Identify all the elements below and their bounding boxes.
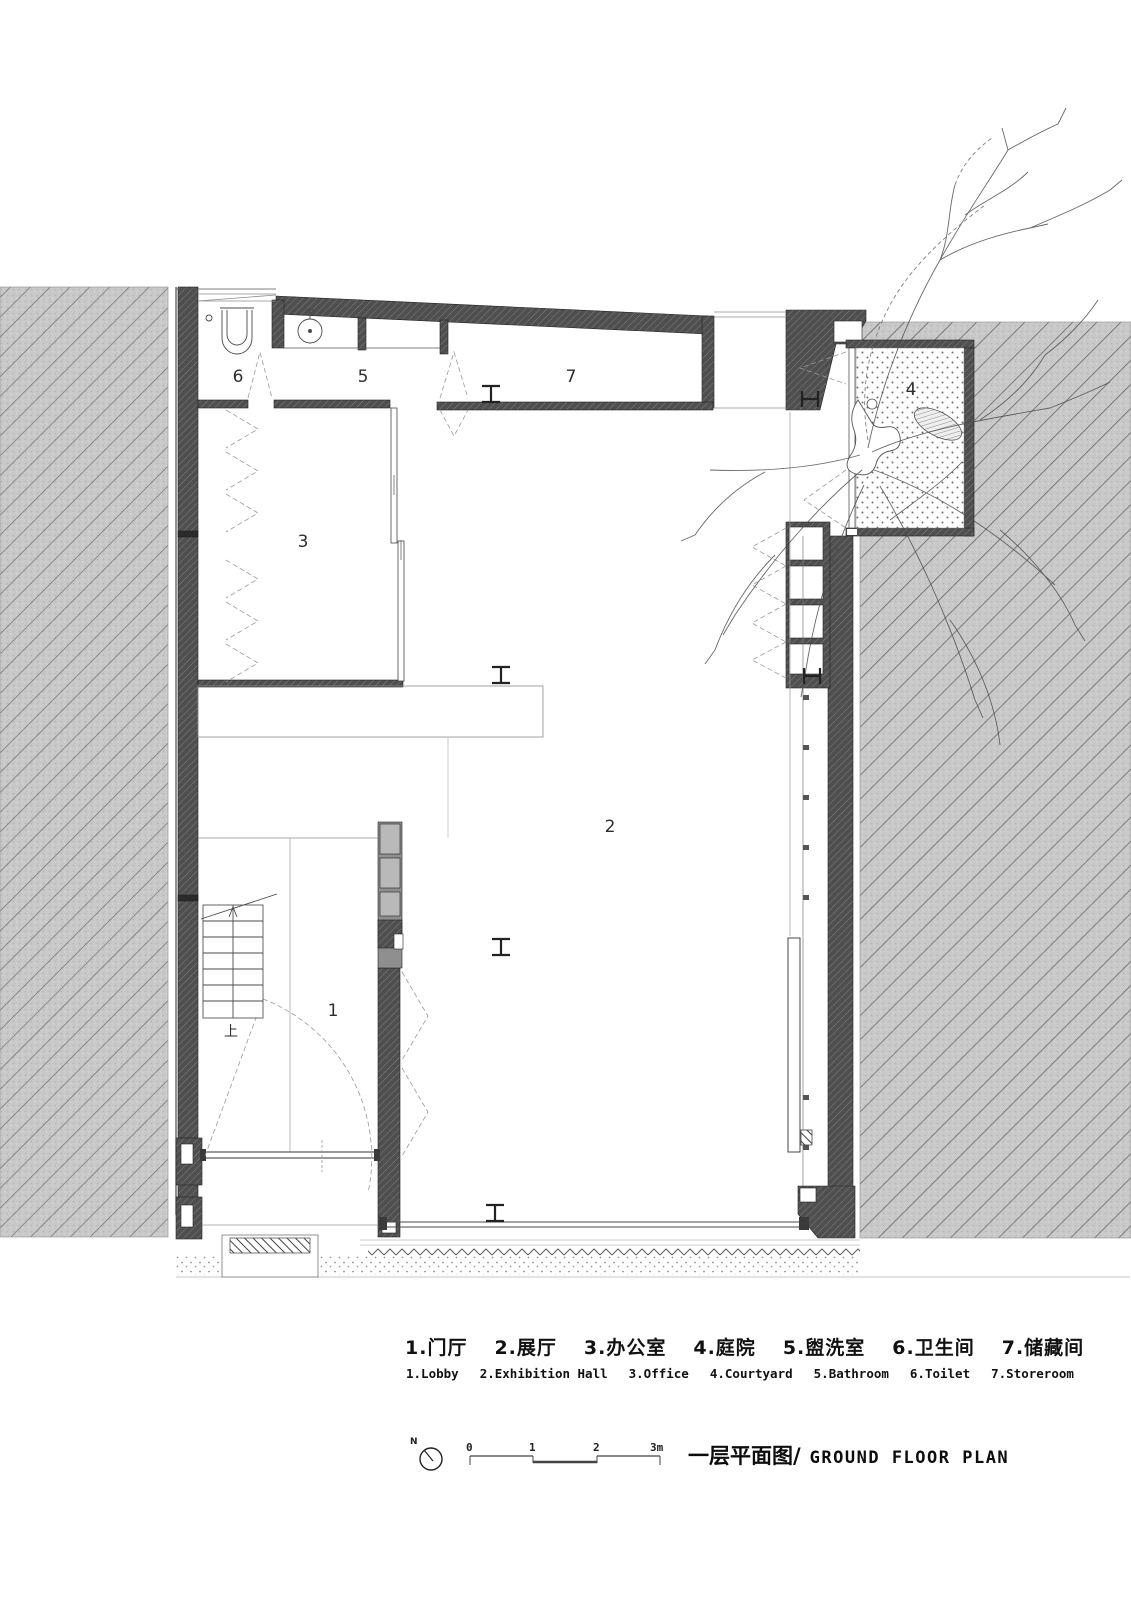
- legend-item-zh: 2.展厅: [494, 1333, 556, 1360]
- scale-tick-1: 1: [529, 1441, 536, 1454]
- drawing-title-zh: 一层平面图/: [688, 1440, 801, 1470]
- legend-item-en: 5.Bathroom: [814, 1366, 889, 1381]
- legend-item-zh: 7.储藏间: [1002, 1333, 1084, 1360]
- staircase: [201, 894, 277, 1018]
- legend-item-en: 1.Lobby: [406, 1366, 459, 1381]
- left-neighbor-block: [0, 287, 168, 1237]
- room-label-courtyard: 4: [906, 380, 917, 400]
- room-label-lobby: 1: [328, 1001, 339, 1021]
- legend-item-en: 6.Toilet: [910, 1366, 970, 1381]
- i-beam-icon: [492, 939, 510, 955]
- legend-item-en: 2.Exhibition Hall: [480, 1366, 608, 1381]
- drawing-title-en: GROUND FLOOR PLAN: [810, 1448, 1010, 1468]
- sliding-door-east: [788, 938, 800, 1152]
- storefront-glass: [379, 1217, 809, 1230]
- i-beam-icon: [482, 386, 500, 402]
- legend-row-zh: 1.门厅 2.展厅 3.办公室 4.庭院 5.盥洗室 6.卫生间 7.储藏间: [405, 1333, 1084, 1360]
- drain-grille: [230, 1238, 310, 1253]
- scale-bar: [470, 1456, 660, 1465]
- legend-item-en: 7.Storeroom: [991, 1366, 1074, 1381]
- floor-plan-svg: 1 2 3 4 5 6 7 上: [0, 0, 1131, 1600]
- fixtures: [201, 308, 322, 1018]
- legend-row-en: 1.Lobby 2.Exhibition Hall 3.Office 4.Cou…: [406, 1366, 1074, 1381]
- i-beam-icon: [492, 667, 510, 683]
- legend-item-zh: 6.卫生间: [892, 1333, 974, 1360]
- room-label-bathroom: 5: [358, 367, 369, 387]
- i-beam-icon: [486, 1205, 504, 1221]
- scale-tick-2: 2: [593, 1441, 600, 1454]
- room-label-office: 3: [298, 532, 309, 552]
- stair-up-label: 上: [224, 1024, 238, 1040]
- legend-item-zh: 4.庭院: [693, 1333, 755, 1360]
- paving-zigzag-edge: [368, 1248, 860, 1256]
- floor-plan-sheet: 1 2 3 4 5 6 7 上 1.门厅 2.展厅 3.办公室 4.庭院 5.盥…: [0, 0, 1131, 1600]
- door-swings: [205, 352, 846, 1193]
- glazing: [200, 408, 812, 1230]
- room-label-exhibition-hall: 2: [605, 817, 616, 837]
- toilet-icon: [206, 308, 254, 354]
- north-label: N: [410, 1437, 418, 1447]
- legend-item-en: 3.Office: [629, 1366, 689, 1381]
- scale-tick-3: 3m: [650, 1441, 663, 1454]
- pavement: [176, 1235, 860, 1277]
- sidewalk-dots: [176, 1255, 222, 1275]
- legend-item-zh: 5.盥洗室: [783, 1333, 865, 1360]
- room-label-toilet: 6: [233, 367, 244, 387]
- courtyard-area: [847, 348, 966, 528]
- north-arrow-icon: [420, 1448, 442, 1470]
- sidewalk-dots: [318, 1255, 860, 1275]
- scale-tick-0: 0: [466, 1441, 473, 1454]
- drawing-title: 一层平面图/ GROUND FLOOR PLAN: [688, 1440, 1009, 1470]
- room-label-storeroom: 7: [566, 367, 577, 387]
- legend-item-zh: 1.门厅: [405, 1333, 467, 1360]
- legend-item-zh: 3.办公室: [584, 1333, 666, 1360]
- legend-item-en: 4.Courtyard: [710, 1366, 793, 1381]
- steel-column-icons: [482, 386, 820, 1221]
